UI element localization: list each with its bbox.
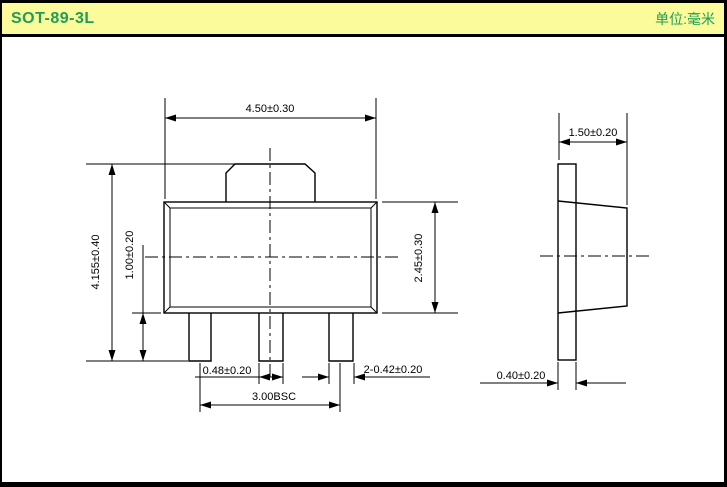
title-bar: SOT-89-3L 单位:毫米 <box>2 0 724 37</box>
dim-side-body-width-label: 1.50±0.20 <box>569 127 618 139</box>
side-body-profile <box>558 201 627 313</box>
dim-outer-lead-width-label: 2-0.42±0.20 <box>364 364 423 376</box>
page-title: SOT-89-3L <box>11 10 95 28</box>
body-corner-bevel <box>371 307 377 313</box>
dim-lead-thickness: 0.40±0.20 <box>480 362 626 390</box>
dim-lead-thickness-label: 0.40±0.20 <box>497 370 546 382</box>
dim-lead-length-label: 1.00±0.20 <box>124 231 136 280</box>
side-view: 1.50±0.20 0.40±0.20 <box>480 113 652 390</box>
body-corner-bevel <box>371 202 377 208</box>
dim-lead-pitch-label: 3.00BSC <box>252 391 296 403</box>
dim-center-lead-width-label: 0.48±0.20 <box>203 365 252 377</box>
dim-body-height-label: 2.45±0.30 <box>413 234 425 283</box>
lead-left <box>189 313 211 361</box>
dim-overall-height: 4.155±0.40 <box>86 164 235 361</box>
unit-label: 单位:毫米 <box>655 9 715 29</box>
side-leadframe-bar <box>558 164 576 360</box>
body-corner-bevel <box>164 307 170 313</box>
lead-center <box>259 313 283 361</box>
dim-top-width-label: 4.50±0.30 <box>246 103 295 115</box>
front-view: 4.50±0.30 4.155±0.40 1.00±0.20 <box>86 98 458 412</box>
lead-right <box>329 313 353 361</box>
dim-outer-lead-width: 2-0.42±0.20 <box>302 363 430 384</box>
package-outline-page: SOT-89-3L 单位:毫米 <box>0 0 727 487</box>
dim-overall-height-label: 4.155±0.40 <box>90 235 102 290</box>
dimension-drawing: 4.50±0.30 4.155±0.40 1.00±0.20 <box>2 0 727 487</box>
dim-lead-length: 1.00±0.20 <box>124 231 161 361</box>
dim-side-body-width: 1.50±0.20 <box>559 113 627 205</box>
body-corner-bevel <box>164 202 170 208</box>
